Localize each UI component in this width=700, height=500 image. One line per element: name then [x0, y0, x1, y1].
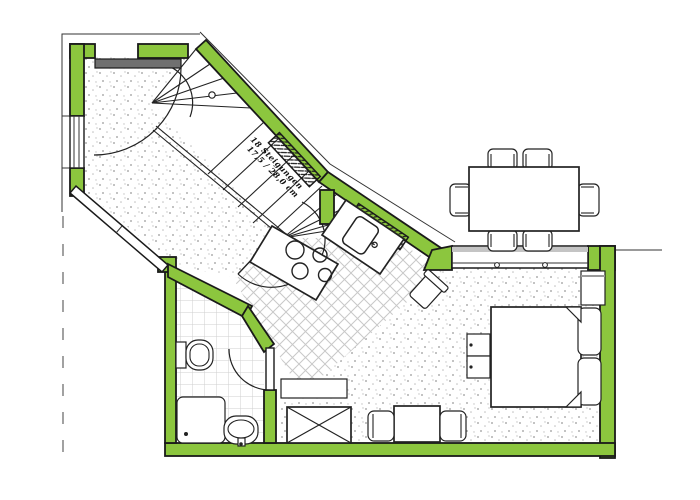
wall-left-upper: [70, 44, 84, 116]
bed: [491, 307, 581, 407]
floor-plan-drawing: 18 Steigungen 17,5 / 28,0 cm: [0, 0, 700, 500]
wall-top-right-of-door: [138, 44, 188, 58]
chair-icon: [488, 230, 517, 251]
wall-partition-bath-dining: [264, 390, 276, 443]
wardrobe: [581, 271, 605, 305]
wall-kitchen-partition: [320, 190, 334, 224]
chair-icon: [578, 184, 599, 216]
chair-icon: [440, 411, 466, 441]
toilet-icon: [176, 340, 213, 370]
chair-icon: [450, 184, 471, 216]
stair-walkline-start-node: [209, 92, 215, 98]
chair-icon: [523, 230, 552, 251]
chair-icon: [368, 411, 394, 441]
wall-bathroom-left: [165, 268, 176, 443]
shower-icon: [177, 397, 225, 443]
terrace-dining-set: [450, 149, 599, 251]
washbasin-icon: [224, 416, 258, 446]
window-fitting-icon: [495, 263, 500, 268]
small-table-set: [368, 406, 466, 442]
dining-table: [469, 167, 579, 231]
sideboard: [281, 379, 347, 398]
wall-bottom: [165, 443, 615, 456]
window-fitting-icon: [543, 263, 548, 268]
built-in-cupboard: [287, 407, 351, 443]
floor-plan-canvas: 18 Steigungen 17,5 / 28,0 cm: [0, 0, 700, 500]
window-left-wall: [62, 116, 84, 168]
window-band-bedroom: [452, 246, 588, 268]
small-table: [394, 406, 440, 442]
